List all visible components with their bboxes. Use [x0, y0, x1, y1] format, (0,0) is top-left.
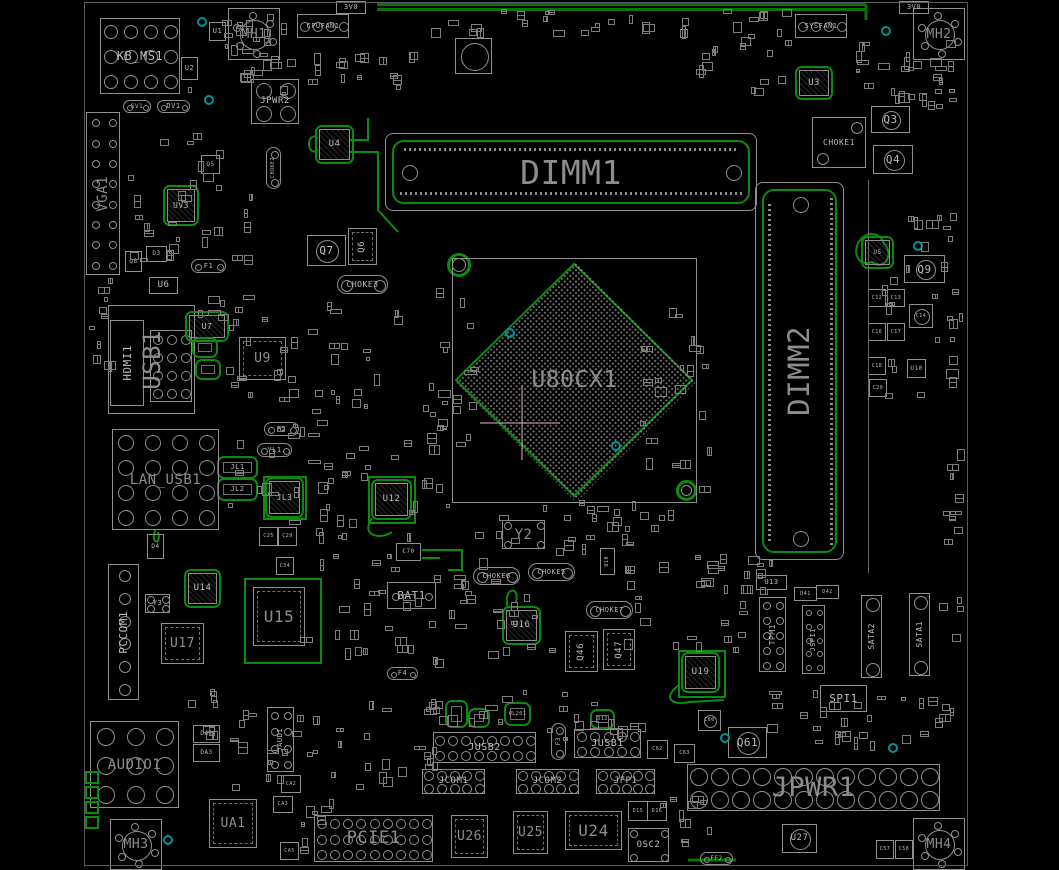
- smd-pad: [208, 296, 220, 304]
- smd-pad: [446, 504, 451, 508]
- smd-pad: [364, 733, 370, 740]
- smd-pad: [941, 262, 948, 273]
- smd-pad: [469, 402, 478, 410]
- smd-pad: [952, 289, 959, 295]
- smd-pad: [948, 236, 953, 242]
- smd-pad: [462, 581, 469, 590]
- smd-pad: [701, 578, 714, 587]
- smd-pad: [859, 732, 867, 739]
- smd-pad: [922, 94, 927, 107]
- smd-pad: [268, 760, 273, 765]
- smd-pad: [465, 591, 472, 596]
- smd-pad: [436, 484, 443, 493]
- smd-pad: [264, 29, 270, 36]
- smd-pad: [101, 314, 109, 319]
- smd-pad: [263, 60, 272, 71]
- smd-pad: [744, 571, 750, 580]
- smd-pad: [890, 277, 898, 285]
- smd-pad: [523, 690, 527, 695]
- smd-pad: [432, 747, 437, 755]
- smd-pad: [415, 598, 422, 607]
- smd-pad: [524, 594, 530, 601]
- smd-pad: [315, 65, 321, 76]
- smd-pad: [680, 365, 684, 370]
- smd-pad: [246, 337, 252, 346]
- smd-pad: [453, 395, 462, 404]
- smd-pad: [331, 354, 339, 366]
- smd-pad: [549, 648, 556, 653]
- smd-pad: [772, 703, 784, 709]
- smd-pad: [948, 61, 955, 72]
- smd-pad: [232, 255, 244, 262]
- board-canvas: MH1KB_MS1U1U2CPUFAN1JPWR2DV1SV1MH2SYSFAN…: [0, 0, 1059, 870]
- smd-pad: [511, 538, 520, 544]
- smd-pad: [630, 723, 639, 730]
- smd-pad: [680, 819, 691, 828]
- smd-pad: [864, 83, 874, 89]
- smd-pad: [488, 651, 500, 660]
- smd-pad: [404, 440, 412, 446]
- smd-pad: [854, 737, 858, 749]
- smd-pad: [364, 603, 371, 616]
- smd-pad: [608, 19, 616, 25]
- smd-pad: [395, 310, 400, 319]
- smd-pad: [308, 329, 318, 335]
- smd-pad: [341, 74, 345, 83]
- smd-pad: [244, 222, 251, 233]
- smd-pad: [702, 62, 713, 72]
- smd-pad: [453, 406, 461, 415]
- smd-pad: [188, 87, 192, 93]
- smd-pad: [610, 728, 618, 735]
- smd-pad: [288, 433, 300, 439]
- smd-pad: [231, 45, 237, 56]
- smd-pad: [629, 15, 633, 24]
- smd-pad: [190, 180, 197, 191]
- smd-pad: [946, 369, 959, 378]
- smd-pad: [409, 52, 415, 63]
- smd-pad: [590, 721, 598, 728]
- smd-pad: [626, 542, 634, 546]
- smd-pad: [257, 486, 262, 495]
- smd-pad: [724, 585, 728, 594]
- smd-pad: [733, 22, 741, 33]
- smd-pad: [198, 161, 204, 173]
- smd-pad: [423, 405, 429, 412]
- smd-pad: [464, 370, 476, 375]
- smd-pad: [282, 749, 289, 756]
- smd-pad: [435, 659, 445, 668]
- smd-pad: [213, 700, 218, 708]
- smd-pad: [749, 17, 759, 21]
- smd-pad: [950, 473, 954, 480]
- smd-pad: [363, 349, 371, 353]
- smd-pad: [144, 223, 150, 232]
- smd-pad: [655, 387, 667, 397]
- smd-pad: [651, 525, 659, 533]
- smd-pad: [346, 453, 355, 459]
- smd-pad: [785, 40, 793, 46]
- smd-pad: [455, 624, 467, 629]
- smd-pad: [646, 438, 658, 445]
- smd-pad: [721, 620, 729, 626]
- smd-pad: [635, 596, 642, 600]
- smd-pad: [403, 594, 416, 601]
- smd-pad: [354, 579, 361, 590]
- smd-pad: [950, 337, 955, 343]
- smd-pad: [271, 56, 279, 69]
- smd-pad: [235, 470, 245, 476]
- smd-pad: [885, 393, 893, 398]
- smd-pad: [226, 367, 234, 375]
- smd-pad: [315, 390, 323, 397]
- smd-pad: [237, 22, 244, 28]
- smd-pad: [930, 58, 942, 67]
- board-inner-line: [868, 180, 869, 573]
- smd-pad: [408, 645, 414, 654]
- smd-pad: [429, 383, 434, 391]
- smd-pad: [841, 718, 848, 727]
- smd-pad: [680, 460, 691, 469]
- smd-pad: [128, 175, 134, 181]
- smd-pad: [282, 92, 287, 96]
- smd-pad: [949, 98, 957, 102]
- smd-pad: [882, 285, 889, 296]
- smd-pad: [947, 464, 959, 472]
- smd-pad: [906, 52, 911, 62]
- smd-pad: [335, 630, 340, 640]
- smd-pad: [300, 847, 309, 854]
- smd-pad: [317, 816, 325, 826]
- smd-pad: [517, 11, 525, 21]
- smd-pad: [767, 50, 773, 57]
- smd-pad: [878, 63, 890, 70]
- smd-pad: [365, 763, 371, 772]
- smd-pad: [449, 610, 455, 619]
- smd-pad: [479, 558, 488, 570]
- smd-pad: [626, 566, 630, 573]
- smd-pad: [434, 575, 442, 582]
- smd-pad: [553, 30, 565, 37]
- smd-pad: [320, 509, 328, 522]
- smd-pad: [216, 150, 224, 159]
- smd-pad: [216, 185, 222, 191]
- smd-pad: [543, 505, 547, 512]
- smd-pad: [243, 295, 255, 300]
- smd-pad: [330, 309, 342, 313]
- smd-pad: [134, 195, 141, 207]
- smd-pad: [188, 700, 196, 709]
- smd-pad: [218, 314, 229, 321]
- smd-pad: [198, 310, 202, 319]
- smd-pad: [675, 385, 685, 394]
- smd-pad: [624, 639, 633, 651]
- smd-pad: [224, 33, 233, 38]
- smd-pad: [950, 213, 958, 221]
- smd-pad: [307, 752, 313, 757]
- smd-pad: [943, 511, 951, 516]
- smd-pad: [642, 346, 653, 352]
- smd-pad: [448, 20, 459, 26]
- smd-pad: [442, 401, 448, 405]
- smd-pad: [292, 731, 301, 737]
- smd-pad: [777, 29, 782, 36]
- smd-pad: [277, 427, 285, 431]
- smd-pad: [741, 37, 751, 46]
- smd-pad: [720, 554, 727, 564]
- smd-pad: [456, 442, 466, 447]
- smd-pad: [293, 424, 299, 428]
- smd-pad: [248, 713, 257, 718]
- smd-pad: [643, 379, 653, 386]
- smd-pad: [287, 59, 297, 67]
- smd-pad: [944, 539, 953, 545]
- smd-pad: [939, 78, 943, 85]
- smd-pad: [708, 565, 718, 574]
- smd-pad: [251, 67, 255, 75]
- smd-pad: [800, 712, 808, 719]
- smd-pad: [682, 18, 689, 26]
- smd-pad: [920, 731, 929, 738]
- smd-pad: [527, 644, 536, 650]
- smd-pad: [339, 606, 350, 613]
- smd-pad: [702, 364, 709, 369]
- smd-pad: [739, 611, 748, 615]
- smd-pad: [700, 800, 707, 805]
- smd-pad: [917, 392, 925, 398]
- smd-pad: [493, 609, 503, 614]
- smd-pad: [277, 775, 283, 785]
- smd-pad: [443, 347, 448, 353]
- smd-pad: [359, 446, 369, 451]
- smd-pad: [98, 287, 110, 294]
- smd-pad: [574, 714, 579, 724]
- smd-pad: [943, 226, 952, 231]
- smd-pad: [308, 79, 318, 85]
- smd-pad: [329, 799, 335, 809]
- smd-pad: [889, 302, 895, 306]
- smd-pad: [97, 341, 101, 350]
- smd-pad: [331, 390, 335, 395]
- smd-pad: [294, 487, 299, 498]
- smd-pad: [471, 24, 482, 32]
- smd-pad: [891, 88, 895, 96]
- smd-pad: [503, 647, 510, 656]
- smd-pad: [336, 728, 345, 732]
- smd-pad: [724, 636, 732, 643]
- smd-pad: [269, 449, 276, 458]
- smd-pad: [614, 509, 621, 515]
- smd-pad: [266, 774, 271, 783]
- smd-pad: [427, 433, 437, 445]
- smd-pad: [942, 704, 951, 711]
- smd-pad: [655, 378, 662, 383]
- smd-pad: [364, 404, 369, 408]
- smd-pad: [168, 222, 177, 226]
- smd-pad: [568, 537, 576, 542]
- smd-pad: [498, 719, 503, 725]
- smd-pad: [233, 319, 239, 326]
- smd-pad: [345, 648, 351, 660]
- smd-pad: [383, 777, 393, 787]
- smd-pad: [767, 724, 779, 734]
- smd-pad: [239, 720, 245, 728]
- smd-pad: [264, 38, 271, 46]
- smd-pad: [391, 567, 399, 573]
- smd-pad: [559, 706, 569, 712]
- smd-pad: [778, 76, 786, 84]
- smd-pad: [689, 345, 702, 351]
- smd-pad: [740, 601, 746, 609]
- smd-pad: [249, 194, 254, 201]
- smd-pad: [842, 731, 851, 742]
- smd-pad: [328, 478, 335, 484]
- smd-pad: [892, 366, 897, 373]
- smd-pad: [564, 540, 574, 551]
- smd-pad: [342, 471, 351, 476]
- smd-pad: [391, 455, 399, 461]
- smd-pad: [863, 42, 871, 47]
- smd-pad: [856, 69, 860, 73]
- smd-pad: [543, 16, 548, 23]
- smd-pad: [738, 632, 746, 638]
- smd-pad: [460, 298, 464, 308]
- smd-pad: [220, 300, 225, 307]
- smd-pad: [659, 515, 665, 521]
- smd-pad: [499, 515, 509, 521]
- smd-pad: [669, 308, 678, 317]
- smd-pad: [99, 307, 107, 314]
- smd-pad: [936, 104, 943, 109]
- smd-pad: [935, 89, 942, 94]
- smd-pad: [89, 326, 95, 330]
- smd-pad: [337, 515, 344, 527]
- smd-pad: [354, 389, 362, 396]
- smd-pad: [426, 707, 431, 713]
- smd-pad: [949, 89, 955, 93]
- smd-pad: [230, 738, 238, 743]
- smd-pad: [314, 53, 321, 65]
- smd-pad: [429, 445, 440, 455]
- smd-pad: [854, 702, 862, 708]
- smd-pad: [950, 708, 954, 716]
- smd-pad: [632, 501, 636, 511]
- smd-pad: [545, 11, 550, 15]
- smd-pad: [949, 516, 957, 521]
- smd-pad: [908, 216, 914, 222]
- smd-pad: [341, 343, 348, 351]
- smd-pad: [288, 376, 297, 383]
- smd-pad: [308, 460, 321, 464]
- smd-pad: [308, 433, 320, 437]
- smd-pad: [687, 365, 694, 377]
- smd-pad: [643, 24, 655, 32]
- smd-pad: [382, 708, 392, 713]
- smd-pad: [312, 409, 321, 415]
- smd-pad: [906, 265, 911, 273]
- smd-pad: [496, 531, 502, 540]
- smd-pad: [475, 532, 484, 540]
- smd-pad: [769, 560, 773, 567]
- smd-pad: [360, 53, 370, 63]
- smd-pad: [369, 591, 380, 596]
- smd-pad: [702, 53, 711, 61]
- smd-pad: [222, 20, 232, 26]
- smd-pad: [104, 297, 109, 302]
- smd-pad: [901, 697, 906, 701]
- smd-pad: [135, 215, 143, 221]
- smd-pad: [357, 75, 362, 81]
- smd-pad: [300, 637, 313, 644]
- smd-pad: [592, 514, 597, 523]
- smd-pad: [759, 12, 768, 22]
- smd-pad: [591, 702, 598, 706]
- smd-pad: [829, 702, 841, 711]
- smd-pad: [369, 701, 374, 710]
- smd-pad: [921, 242, 930, 252]
- smd-pad: [618, 728, 623, 739]
- smd-pad: [324, 485, 329, 490]
- smd-pad: [413, 501, 418, 513]
- smd-pad: [387, 554, 392, 560]
- smd-pad: [140, 258, 148, 262]
- smd-pad: [232, 784, 240, 791]
- smd-pad: [355, 647, 363, 657]
- smd-pad: [267, 14, 274, 21]
- smd-pad: [169, 244, 180, 254]
- smd-pad: [231, 382, 239, 389]
- smd-pad: [228, 503, 233, 508]
- smd-pad: [595, 23, 600, 28]
- smd-pad: [393, 75, 402, 85]
- smd-pad: [467, 323, 474, 330]
- smd-pad: [379, 57, 387, 65]
- smd-pad: [908, 67, 914, 71]
- smd-pad: [511, 621, 518, 626]
- smd-pad: [430, 412, 436, 418]
- smd-pad: [324, 463, 333, 471]
- smd-pad: [914, 217, 918, 230]
- smd-pad: [939, 603, 948, 612]
- smd-pad: [955, 494, 964, 503]
- smd-pad: [857, 60, 869, 65]
- smd-pad: [313, 716, 320, 726]
- smd-pad: [877, 696, 887, 701]
- smd-pad: [646, 458, 653, 470]
- smd-pad: [491, 579, 501, 584]
- smd-pad: [361, 473, 368, 482]
- smd-pad: [556, 548, 564, 557]
- smd-pad: [581, 30, 589, 36]
- smd-pad: [627, 581, 635, 591]
- smd-pad: [356, 784, 364, 790]
- smd-pad: [374, 374, 380, 387]
- smd-pad: [638, 723, 647, 732]
- smd-pad: [202, 237, 208, 249]
- smd-pad: [815, 740, 823, 745]
- smd-pad: [93, 355, 101, 364]
- smd-pad: [316, 528, 323, 536]
- smd-pad: [372, 560, 381, 566]
- smd-pad: [937, 215, 943, 222]
- smd-pad: [743, 585, 751, 594]
- smd-pad: [733, 647, 739, 653]
- smd-pad: [501, 9, 507, 13]
- smd-pad: [760, 79, 768, 85]
- smd-pad: [813, 726, 821, 731]
- smd-pad: [366, 357, 370, 361]
- smd-pad: [331, 772, 336, 778]
